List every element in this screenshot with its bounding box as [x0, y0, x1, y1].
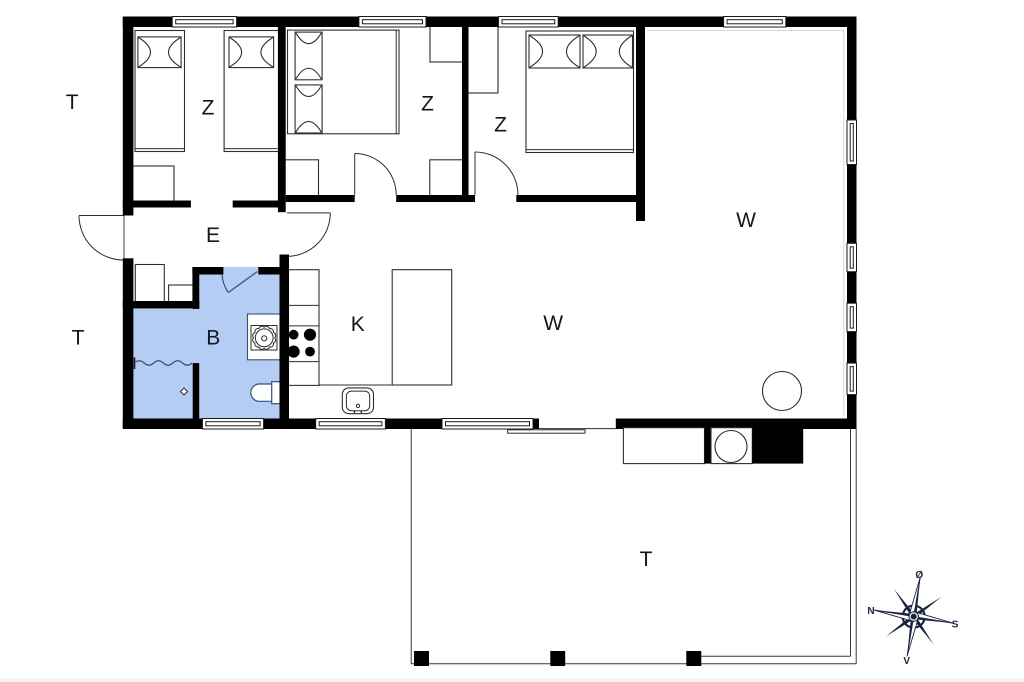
svg-text:S: S — [952, 619, 959, 630]
svg-text:N: N — [867, 606, 874, 617]
svg-text:Z: Z — [421, 93, 434, 116]
svg-text:K: K — [351, 313, 365, 336]
svg-text:B: B — [206, 327, 220, 350]
svg-text:W: W — [736, 209, 756, 232]
svg-text:T: T — [640, 548, 653, 571]
svg-text:W: W — [543, 312, 563, 335]
svg-text:T: T — [72, 327, 85, 350]
svg-text:Z: Z — [202, 97, 215, 120]
svg-text:T: T — [66, 91, 79, 114]
svg-text:E: E — [206, 224, 220, 247]
svg-text:Ø: Ø — [915, 570, 923, 581]
svg-text:V: V — [903, 656, 910, 667]
svg-text:Z: Z — [494, 114, 507, 137]
